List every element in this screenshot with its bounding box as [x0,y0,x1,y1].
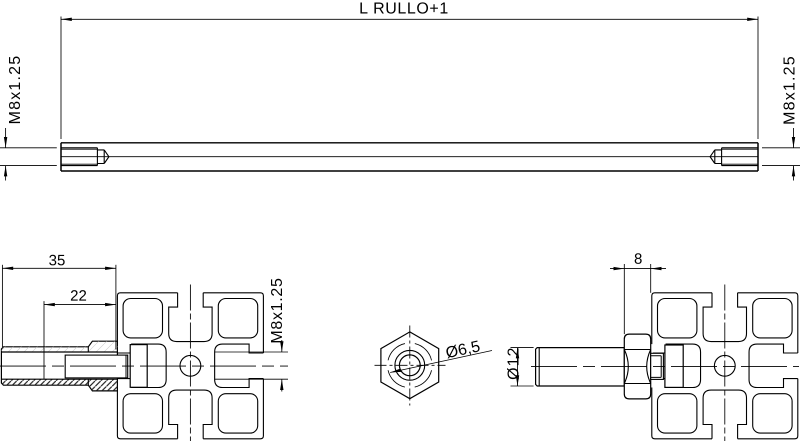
svg-text:Ø12: Ø12 [505,347,522,380]
svg-text:35: 35 [49,252,66,269]
svg-text:M8x1.25: M8x1.25 [781,55,798,125]
svg-text:8: 8 [634,251,642,268]
svg-text:M8x1.25: M8x1.25 [269,277,286,343]
svg-text:M8x1.25: M8x1.25 [7,55,24,125]
svg-text:L RULLO+1: L RULLO+1 [359,0,449,17]
svg-text:22: 22 [70,288,87,305]
